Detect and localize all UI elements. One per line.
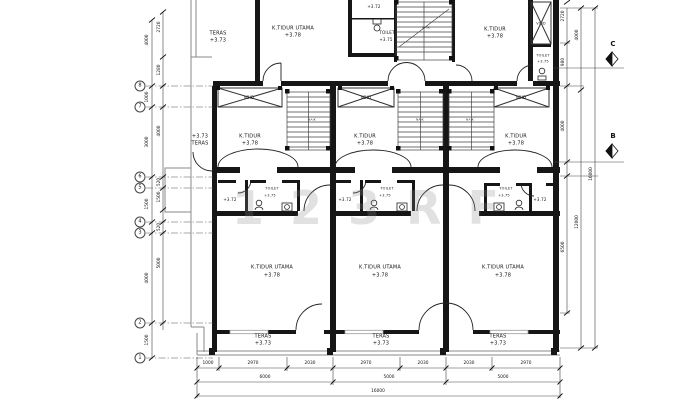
dim-label: 980 — [562, 58, 566, 66]
dim-label: 1500 — [146, 199, 150, 210]
dim-label: 520 — [158, 223, 162, 231]
grid-bubble-7: 7 — [135, 102, 146, 113]
room-label-toilet: TOILET — [380, 187, 393, 191]
room-elev: +3.78 — [264, 274, 280, 279]
grid-bubble-2: 2 — [135, 318, 146, 329]
dim-label: 1000 — [146, 92, 150, 103]
dim-label: 1280 — [158, 65, 162, 76]
room-label-toilet-top: TOILET — [379, 31, 394, 35]
room-label-teras-top: TERAS — [209, 32, 226, 37]
room-label-ktidur: K.TIDUR — [505, 135, 527, 140]
room-elev: +3.78 — [285, 34, 301, 39]
room-elev: +3.78 — [357, 142, 373, 147]
room-elev: +3.73 — [210, 39, 226, 44]
dim-label: 4000 — [146, 35, 150, 46]
room-elev: +3.75 — [379, 38, 392, 42]
floor-plan-canvas: 123RF TERAS +3.73 K.TIDUR UTAMA +3.78 +3… — [0, 0, 700, 420]
dim-label: 2970 — [521, 362, 532, 366]
stair-direction-note: NAIK — [466, 119, 474, 122]
room-elev-372: +3.72 — [223, 198, 236, 202]
grid-bubble-6: 6 — [135, 172, 146, 183]
dim-label: 5000 — [498, 376, 509, 380]
dim-label: 2720 — [562, 11, 566, 22]
dim-label: 5000 — [384, 376, 395, 380]
room-elev-372: +3.72 — [367, 5, 380, 9]
section-marker-b: B — [610, 132, 615, 140]
room-label-toilet-shaft: TOILET — [536, 54, 549, 58]
dim-label: 12000 — [576, 215, 580, 229]
room-elev: +3.78 — [372, 274, 388, 279]
room-elev: +3.73 — [373, 342, 389, 347]
dim-label: 4000 — [158, 126, 162, 137]
room-label-teras: TERAS — [372, 335, 389, 340]
stair-direction-note: NAIK — [308, 119, 316, 122]
room-label-teras: TERAS — [489, 335, 506, 340]
grid-bubble-4: 4 — [135, 217, 146, 228]
room-elev: +3.73 — [490, 342, 506, 347]
room-label-ktidur-utama: K.TIDUR UTAMA — [482, 266, 524, 271]
room-label-teras: TERAS — [254, 335, 271, 340]
walls — [209, 0, 560, 355]
room-label-ktidur-top: K.TIDUR — [484, 28, 506, 33]
dim-label: 3000 — [146, 137, 150, 148]
room-elev: +3.75 — [498, 194, 510, 198]
room-label-ktidur-utama: K.TIDUR UTAMA — [359, 266, 401, 271]
dim-label: 16000 — [371, 390, 385, 394]
staircases — [287, 2, 494, 150]
room-label-ktidur: K.TIDUR — [239, 135, 261, 140]
room-label-void: VOID — [361, 96, 372, 100]
room-elev: +3.75 — [264, 194, 276, 198]
stair-direction-note: NAIK — [422, 27, 430, 30]
dim-label: 6500 — [562, 242, 566, 253]
room-label-void: VOID — [516, 96, 527, 100]
dim-label: 2720 — [158, 22, 162, 33]
corner-posts — [216, 0, 550, 151]
dim-label: 5000 — [158, 258, 162, 269]
plan-linework — [0, 0, 700, 420]
dim-label: 1000 — [203, 362, 214, 366]
dim-label: 1500 — [158, 192, 162, 203]
room-elev: +3.78 — [487, 35, 503, 40]
room-elev: +3.75 — [537, 60, 549, 64]
room-label-void: VOID — [244, 96, 255, 100]
room-elev: +3.75 — [379, 194, 391, 198]
room-elev: +3.78 — [495, 274, 511, 279]
dim-label: 6000 — [260, 376, 271, 380]
dim-label: 4000 — [576, 30, 580, 41]
stair-direction-note: NAIK — [416, 119, 424, 122]
grid-bubble-3: 3 — [135, 228, 146, 239]
dim-label: 4000 — [146, 273, 150, 284]
dim-label: 2970 — [361, 362, 372, 366]
room-label-toilet: TOILET — [499, 187, 512, 191]
room-label-ktidur: K.TIDUR — [354, 135, 376, 140]
grid-bubble-5: 5 — [135, 183, 146, 194]
dim-label: 4000 — [562, 121, 566, 132]
room-elev: +3.78 — [508, 142, 524, 147]
room-elev: +3.73 — [192, 135, 208, 140]
dim-label: 16000 — [590, 167, 594, 181]
room-label-ktidur-utama-top: K.TIDUR UTAMA — [272, 27, 314, 32]
grid-bubble-1: 1 — [135, 353, 146, 364]
dim-label: 2030 — [418, 362, 429, 366]
room-label-ktidur-utama: K.TIDUR UTAMA — [251, 266, 293, 271]
dim-label: 2970 — [248, 362, 259, 366]
grid-bubble-8: 8 — [135, 81, 146, 92]
dim-label: 1500 — [146, 335, 150, 346]
room-elev-372: +3.72 — [533, 198, 546, 202]
section-marker-c: C — [610, 40, 615, 48]
room-label-teras-side: TERAS — [191, 142, 208, 147]
room-elev-372: +3.72 — [338, 198, 351, 202]
dim-label: 2030 — [305, 362, 316, 366]
room-label-toilet: TOILET — [265, 187, 278, 191]
room-elev: +3.78 — [242, 142, 258, 147]
room-elev: +3.73 — [255, 342, 271, 347]
dim-label: 2030 — [464, 362, 475, 366]
room-label-void-top: VOID — [536, 22, 546, 26]
dim-label: 520 — [158, 178, 162, 186]
